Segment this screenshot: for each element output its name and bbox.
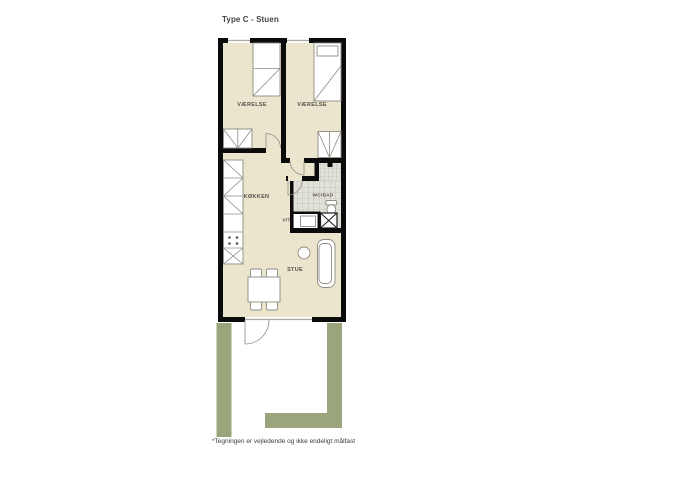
wall-niche-top <box>294 212 320 215</box>
wall-bedroom-right-south-a <box>286 158 290 163</box>
toilet <box>326 201 337 215</box>
wall-bedroom-left-south <box>223 148 266 153</box>
wall-bedroom-right-south-b <box>304 158 341 163</box>
wall-bottom-right <box>312 317 346 322</box>
label-living-room: STUE <box>287 267 303 273</box>
label-bedroom-right: VÆRELSE <box>297 102 327 108</box>
window-bedroom-right <box>287 40 309 41</box>
washing-machine <box>301 216 316 227</box>
wall-right <box>341 43 346 322</box>
label-bathroom: WC/BAD <box>313 193 334 199</box>
wall-bottom-left <box>218 317 245 322</box>
label-bedroom-left: VÆRELSE <box>237 102 267 108</box>
shower-drain <box>328 163 333 167</box>
dining-table <box>248 277 280 302</box>
wall-bath-top-a <box>286 176 288 181</box>
footnote: *Tegningen er vejledende og ikke endelig… <box>212 438 355 445</box>
wall-left <box>218 43 223 322</box>
wall-bedroom-partition <box>281 43 286 163</box>
label-kitchen: KØKKEN <box>244 194 270 200</box>
window-bedroom-left <box>228 40 250 41</box>
floor-plan-page: Type C - Stuen <box>0 0 687 479</box>
floor-plan-drawing: VÆRELSE VÆRELSE KØKKEN WC/BAD V/T STUE <box>0 0 687 479</box>
door-terrace <box>245 320 269 344</box>
bed-left <box>253 43 280 96</box>
wall-bath-south <box>290 228 346 233</box>
wardrobe-left <box>224 129 253 148</box>
chair <box>267 302 278 311</box>
chair <box>251 302 262 311</box>
chair <box>267 269 278 278</box>
wall-bath-top-b <box>302 176 319 181</box>
side-table <box>298 247 310 259</box>
label-utility: V/T <box>282 218 290 224</box>
terrace-glazing <box>245 319 312 320</box>
lawn-strip-left <box>217 323 232 437</box>
chair <box>251 269 262 278</box>
sofa <box>318 240 336 288</box>
lawn-strip-right <box>327 323 342 428</box>
wall-bath-west <box>290 181 294 233</box>
wardrobe-right <box>318 132 341 158</box>
bed-right <box>314 43 341 101</box>
lawn-strip-bottom <box>265 413 342 428</box>
kitchen-counter <box>224 160 244 264</box>
dryer-unit-icon <box>321 213 338 228</box>
lawn-strips <box>217 323 343 437</box>
